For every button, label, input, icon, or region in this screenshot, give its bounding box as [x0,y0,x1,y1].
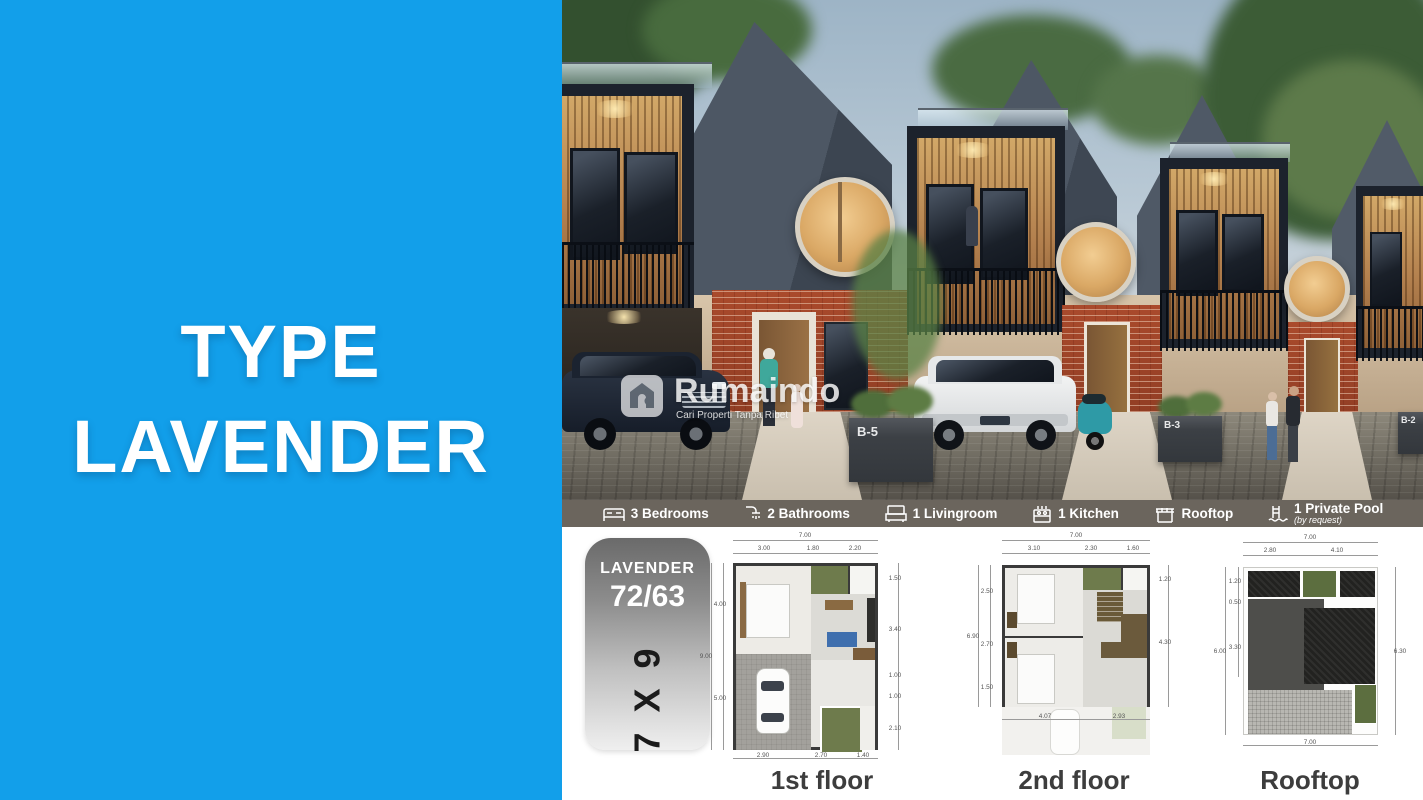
dimension-line [1002,719,1150,720]
dimension-label: 1.00 [889,671,901,678]
ceiling-light [952,142,994,158]
wheel [1026,420,1056,450]
wardrobe [1007,612,1017,628]
dimension-label: 3.00 [758,544,770,551]
plan-label-rooftop: Rooftop [1260,765,1360,796]
left-panel: TYPE LAVENDER [0,0,562,800]
dimension-line [1243,555,1378,556]
dimension-line [723,563,724,750]
dimension-line [1002,540,1150,541]
kitchen-counter [867,598,875,642]
stairs [1097,592,1123,622]
scooter-body [1078,400,1112,434]
watermark-tagline: Cari Properti Tanpa Ribet [676,410,788,421]
bed [1017,574,1055,624]
planter-b3: B-3 [1158,400,1222,462]
dimension-label: 1.50 [889,574,901,581]
scooter-seat [1082,394,1106,404]
watermark: Rumaindo Cari Properti Tanpa Ribet [620,372,920,428]
porthole-mullion [838,182,842,262]
ceiling-light [1378,198,1408,210]
bedroom [736,566,813,656]
wheel [934,420,964,450]
unit-label: B-3 [1164,420,1180,431]
feature-bathrooms: 2 Bathrooms [742,504,850,524]
dimension-label: 1.60 [1127,544,1139,551]
garden-patch [811,566,850,594]
bedroom-2 [1005,568,1085,638]
house-render-photo: B-5 B-3 B-2 [562,0,1423,500]
porthole-window [1056,222,1136,302]
feature-label: Rooftop [1182,506,1234,521]
dimension-label: 6.30 [1394,647,1406,654]
dimension-label: 1.00 [889,692,901,699]
plan-car-rear [761,713,784,722]
plan2-ghost-below [1002,707,1150,755]
cabinet [853,648,875,660]
dimension-label: 2.70 [981,640,993,647]
kitchen-icon [1031,504,1053,524]
dimension-label: 2.10 [889,724,901,731]
feature-sublabel: (by request) [1294,516,1383,525]
scooter [1074,392,1116,450]
dimension-label: 1.20 [1159,575,1171,582]
roof-panel-large [1304,608,1375,684]
person-legs [1267,426,1277,460]
balcony-railing [1356,306,1423,361]
dimension-label: 7.00 [799,531,811,538]
dimension-label: 7.00 [1304,533,1316,540]
type-card: LAVENDER 72/63 7 X 9 [585,538,710,750]
sofa-icon [884,504,908,524]
balcony-railing [1160,290,1288,351]
dimension-label: 2.50 [981,587,993,594]
dimension-line [1168,565,1169,707]
ghost-car [1050,709,1080,755]
dimension-label: 4.10 [1331,546,1343,553]
mpv-windshield [936,360,1054,382]
bed-headboard [740,582,746,638]
wheel [584,418,616,450]
dimension-label: 2.93 [1113,712,1125,719]
type-card-footprint: 7 X 9 [596,636,700,761]
feature-label: 1 Private Pool [1294,502,1383,517]
mpv-plate [980,416,1010,425]
window [1176,210,1218,296]
wardrobe [1007,642,1017,658]
floorplan-1st-floor [733,563,878,750]
window [624,152,678,254]
plan-car [756,668,790,734]
feature-label: 3 Bedrooms [631,506,709,521]
dimension-line [898,563,899,750]
dimension-label: 3.10 [1028,544,1040,551]
bed [746,584,790,638]
roof-panel [1340,571,1375,597]
rumaindo-logo-icon [620,374,664,418]
feature-kitchen: 1 Kitchen [1031,504,1119,524]
person-head [1289,386,1299,396]
right-column: B-5 B-3 B-2 [562,0,1423,800]
person-walking-2 [1284,386,1302,464]
dimension-label: 2.80 [1264,546,1276,553]
poster: TYPE LAVENDER [0,0,1423,800]
dimension-label: 2.90 [757,751,769,758]
dimension-label: 1.20 [1229,577,1241,584]
bedroom-3 [1005,638,1085,710]
type-title-line1: TYPE [180,305,381,400]
dimension-label: 9.00 [700,652,712,659]
person-legs [1288,426,1298,462]
bathroom [850,566,875,594]
terrace [860,706,875,750]
floorplan-2nd-floor [1002,565,1150,707]
dimension-label: 3.30 [1229,643,1241,650]
dimension-label: 2.20 [849,544,861,551]
person-walking-1 [1264,392,1280,462]
dimension-label: 4.07 [1039,712,1051,719]
feature-strip: 3 Bedrooms 2 Bathrooms 1 Livingroom 1 Ki… [562,500,1423,527]
planter-box: B-3 [1158,416,1222,462]
bed [1017,654,1055,704]
dimension-line [733,553,878,554]
sofa [827,632,857,647]
roof-garden [1303,571,1336,597]
dimension-line [1002,553,1150,554]
type-title-line2: LAVENDER [72,400,490,495]
dimension-label: 5.00 [714,694,726,701]
floorplans-section: LAVENDER 72/63 7 X 9 [562,527,1423,800]
plan-car-windshield [761,681,784,691]
dimension-label: 7.00 [1070,531,1082,538]
plan-label-1st-floor: 1st floor [771,765,874,796]
rear-garden [820,706,864,754]
feature-label: 2 Bathrooms [767,506,850,521]
shower-icon [742,504,762,524]
dining-table [825,600,853,610]
type-card-size: 72/63 [610,580,685,614]
person-torso [1266,401,1278,427]
unit-label: B-2 [1401,415,1416,425]
person-balcony [966,206,978,246]
dimension-line [733,540,878,541]
carport [736,654,811,750]
dimension-label: 6.00 [1214,647,1226,654]
planter-b2: B-2 [1398,398,1423,454]
dimension-label: 2.70 [815,751,827,758]
watermark-brand: Rumaindo [674,372,840,411]
window [1222,214,1264,292]
dimension-label: 1.50 [981,683,993,690]
person-head [1268,392,1277,401]
living-dining [811,594,875,660]
ceiling-light [1196,172,1232,186]
bathroom [1123,568,1147,590]
person-torso [1286,396,1300,426]
type-card-name: LAVENDER [600,560,695,578]
feature-private-pool: 1 Private Pool (by request) [1267,502,1383,526]
roof-grid-deck [1248,690,1352,734]
window [1370,232,1402,306]
pool-icon [1267,504,1289,524]
plant [1186,392,1222,416]
cabinet-l2 [1101,642,1147,658]
feature-label: 1 Kitchen [1058,506,1119,521]
roof-panel [1248,571,1300,597]
planter-box: B-2 [1398,412,1423,454]
ceiling-light [592,100,638,118]
dimension-label: 0.50 [1229,598,1241,605]
window [980,188,1028,280]
floorplan-rooftop [1243,567,1378,735]
plan-label-2nd-floor: 2nd floor [1018,765,1129,796]
bed-icon [602,505,626,523]
dimension-label: 1.40 [857,751,869,758]
balcony-railing [562,242,694,309]
mpv-car [914,356,1076,452]
dimension-label: 3.40 [889,625,901,632]
garden-patch [1083,568,1123,590]
feature-label: 1 Livingroom [913,506,998,521]
rooftop-icon [1153,504,1177,524]
carport-light [602,310,646,324]
dimension-line [1243,542,1378,543]
feature-bedrooms: 3 Bedrooms [602,505,709,523]
wheel [1086,432,1104,450]
dimension-label: 2.30 [1085,544,1097,551]
dimension-label: 1.80 [807,544,819,551]
feature-rooftop: Rooftop [1153,504,1234,524]
dimension-label: 6.90 [967,632,979,639]
porthole-window [1284,256,1350,322]
dimension-label: 4.30 [1159,638,1171,645]
dimension-label: 7.00 [1304,738,1316,745]
roof-garden-2 [1354,684,1377,724]
dimension-label: 4.00 [714,600,726,607]
feature-livingroom: 1 Livingroom [884,504,998,524]
